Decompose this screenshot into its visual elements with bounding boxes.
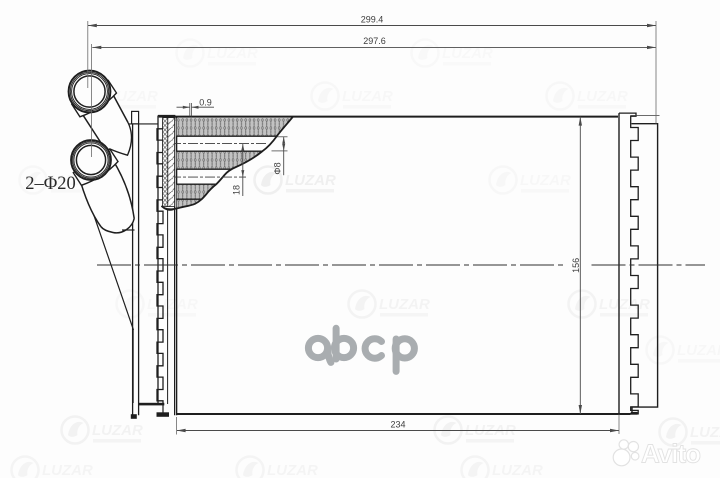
svg-text:299.4: 299.4 bbox=[361, 14, 384, 24]
svg-text:234: 234 bbox=[390, 419, 405, 429]
svg-text:156: 156 bbox=[571, 258, 581, 273]
svg-text:0.9: 0.9 bbox=[199, 97, 212, 107]
svg-text:2–Φ20: 2–Φ20 bbox=[25, 174, 76, 194]
svg-text:Φ8: Φ8 bbox=[272, 162, 282, 174]
svg-text:297.6: 297.6 bbox=[363, 36, 386, 46]
svg-text:18: 18 bbox=[232, 185, 242, 195]
svg-text:Avito: Avito bbox=[641, 439, 700, 469]
